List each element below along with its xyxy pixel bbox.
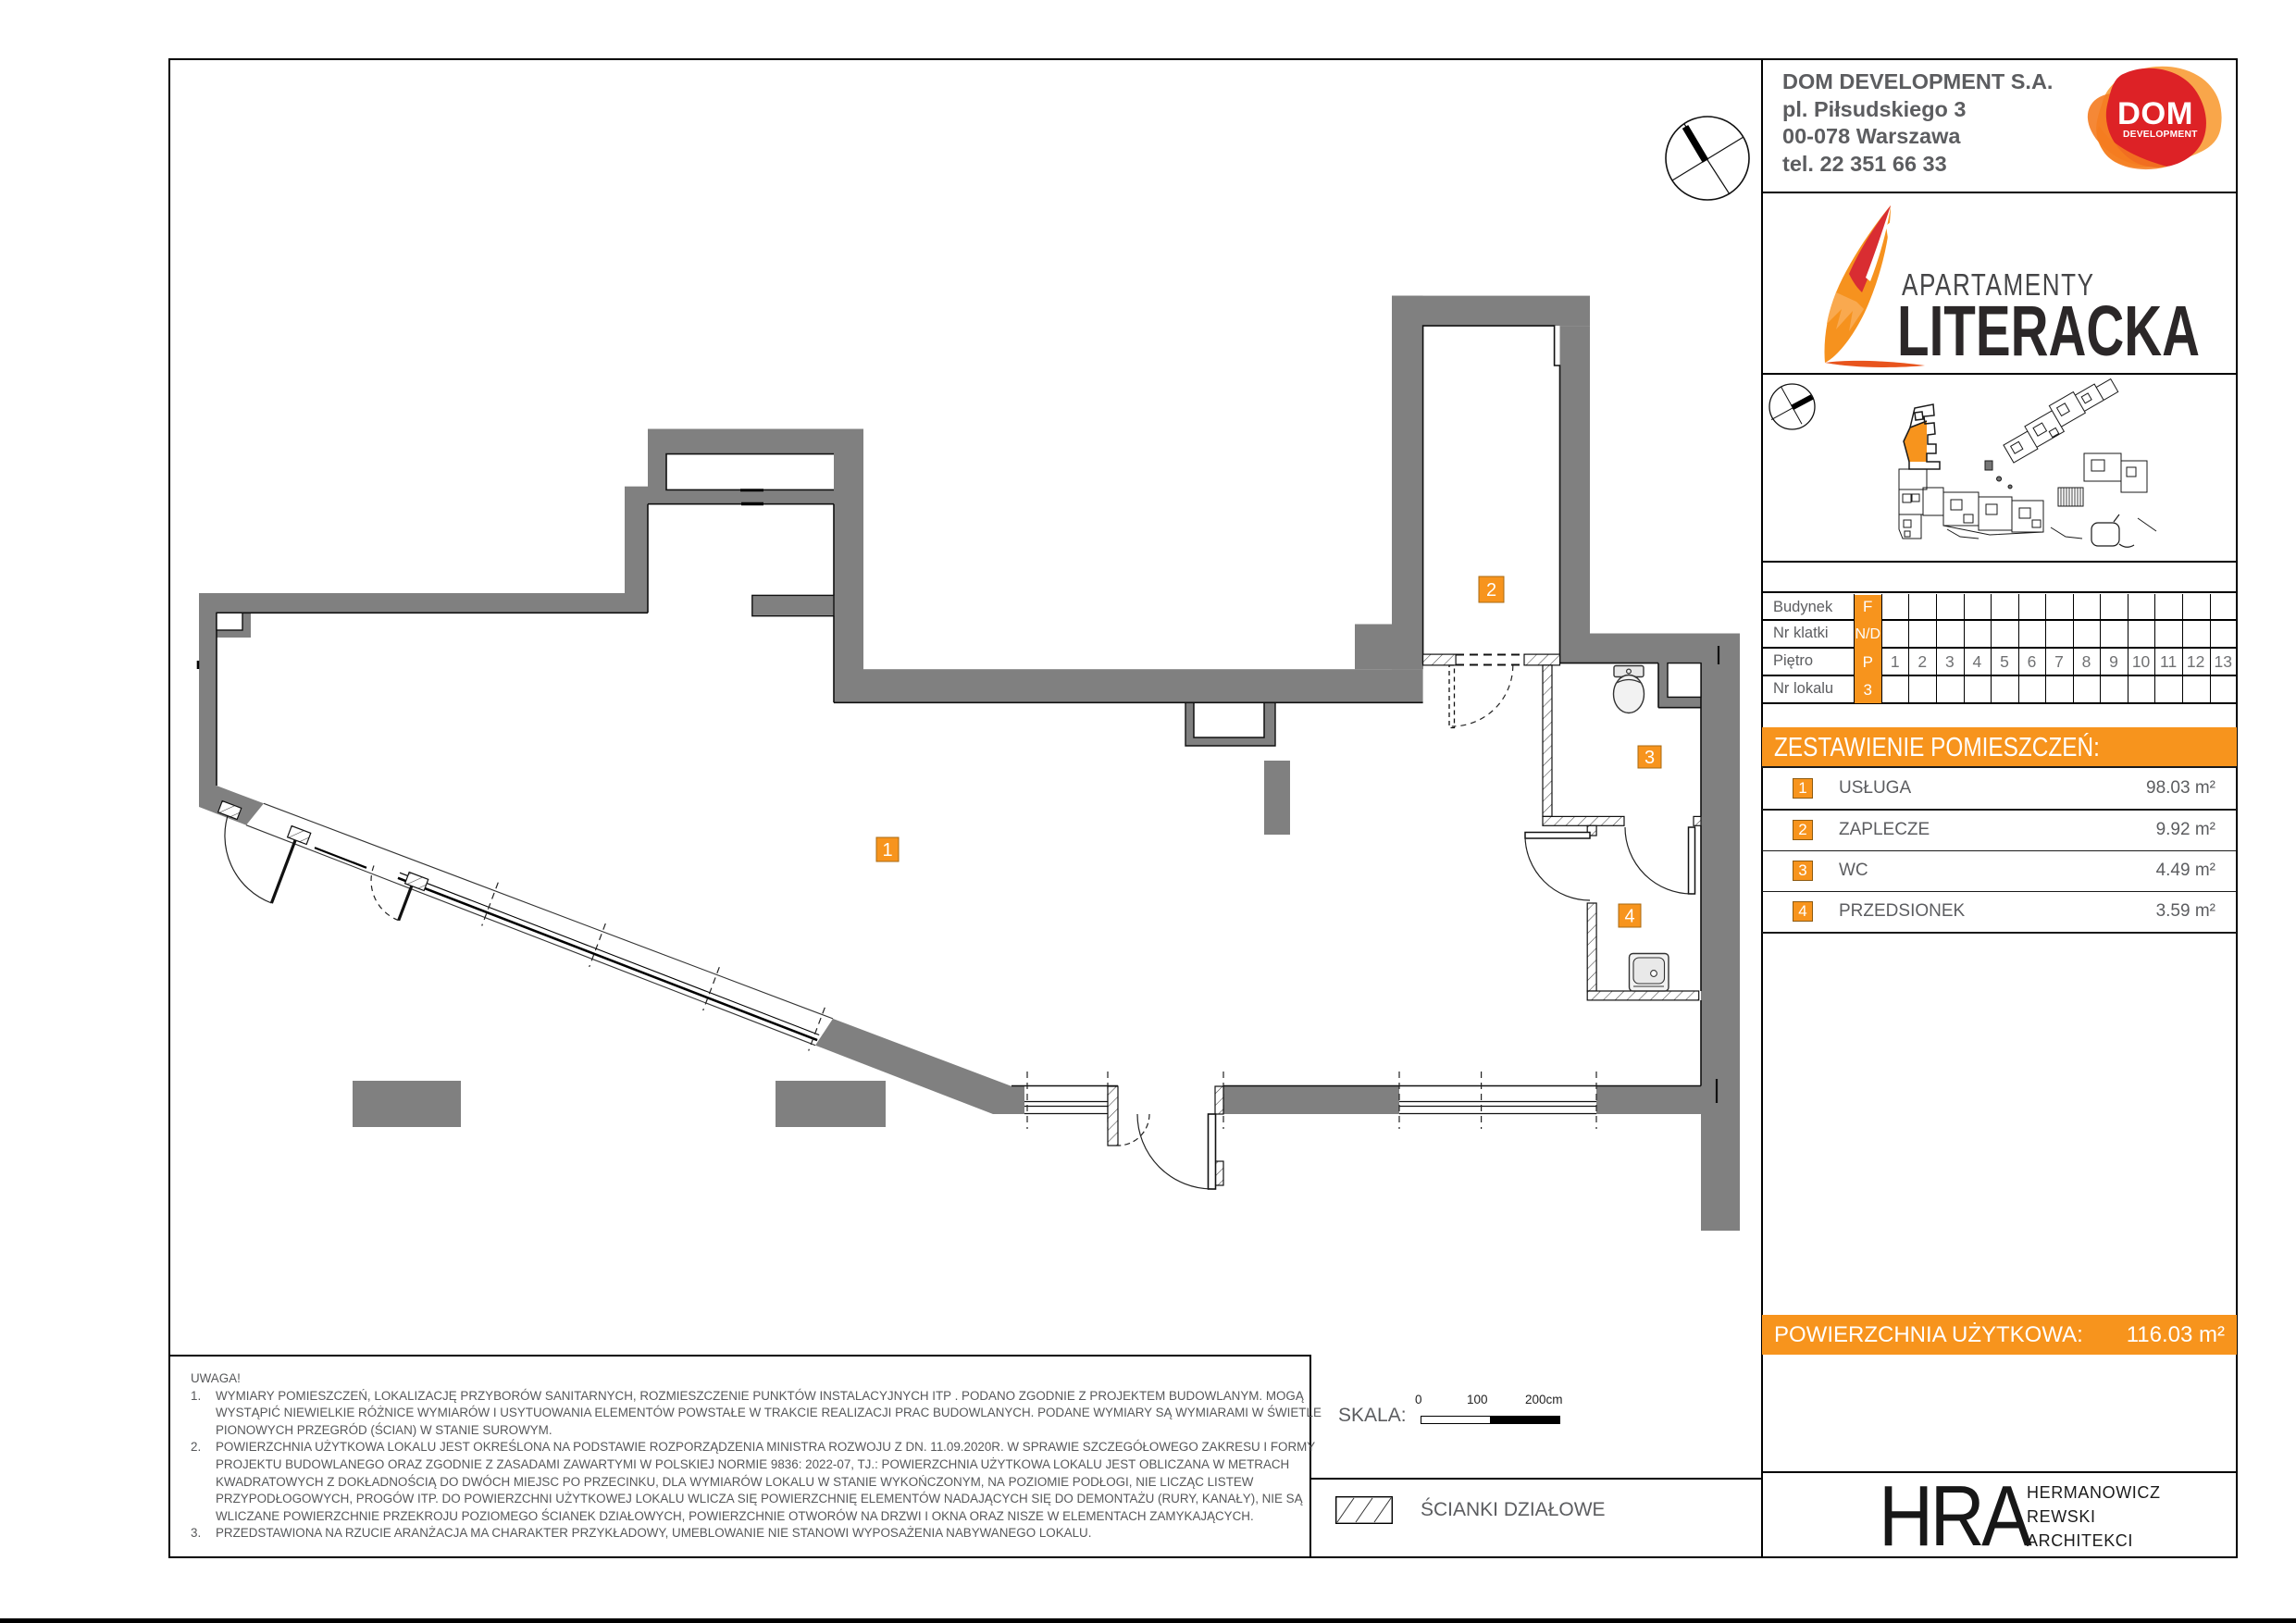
svg-text:4: 4 [1624, 907, 1634, 927]
svg-text:3: 3 [1644, 748, 1655, 768]
svg-text:1: 1 [882, 840, 892, 861]
svg-text:2: 2 [1486, 580, 1496, 601]
